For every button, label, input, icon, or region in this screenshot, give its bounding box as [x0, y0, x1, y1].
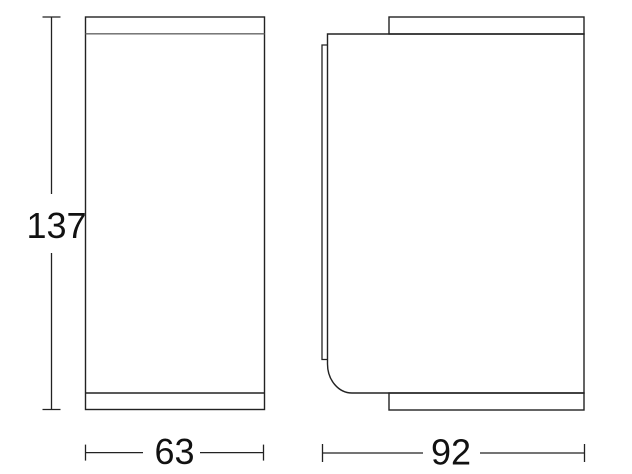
svg-text:63: 63 — [154, 431, 194, 472]
svg-text:137: 137 — [26, 205, 86, 246]
svg-text:92: 92 — [431, 432, 471, 473]
